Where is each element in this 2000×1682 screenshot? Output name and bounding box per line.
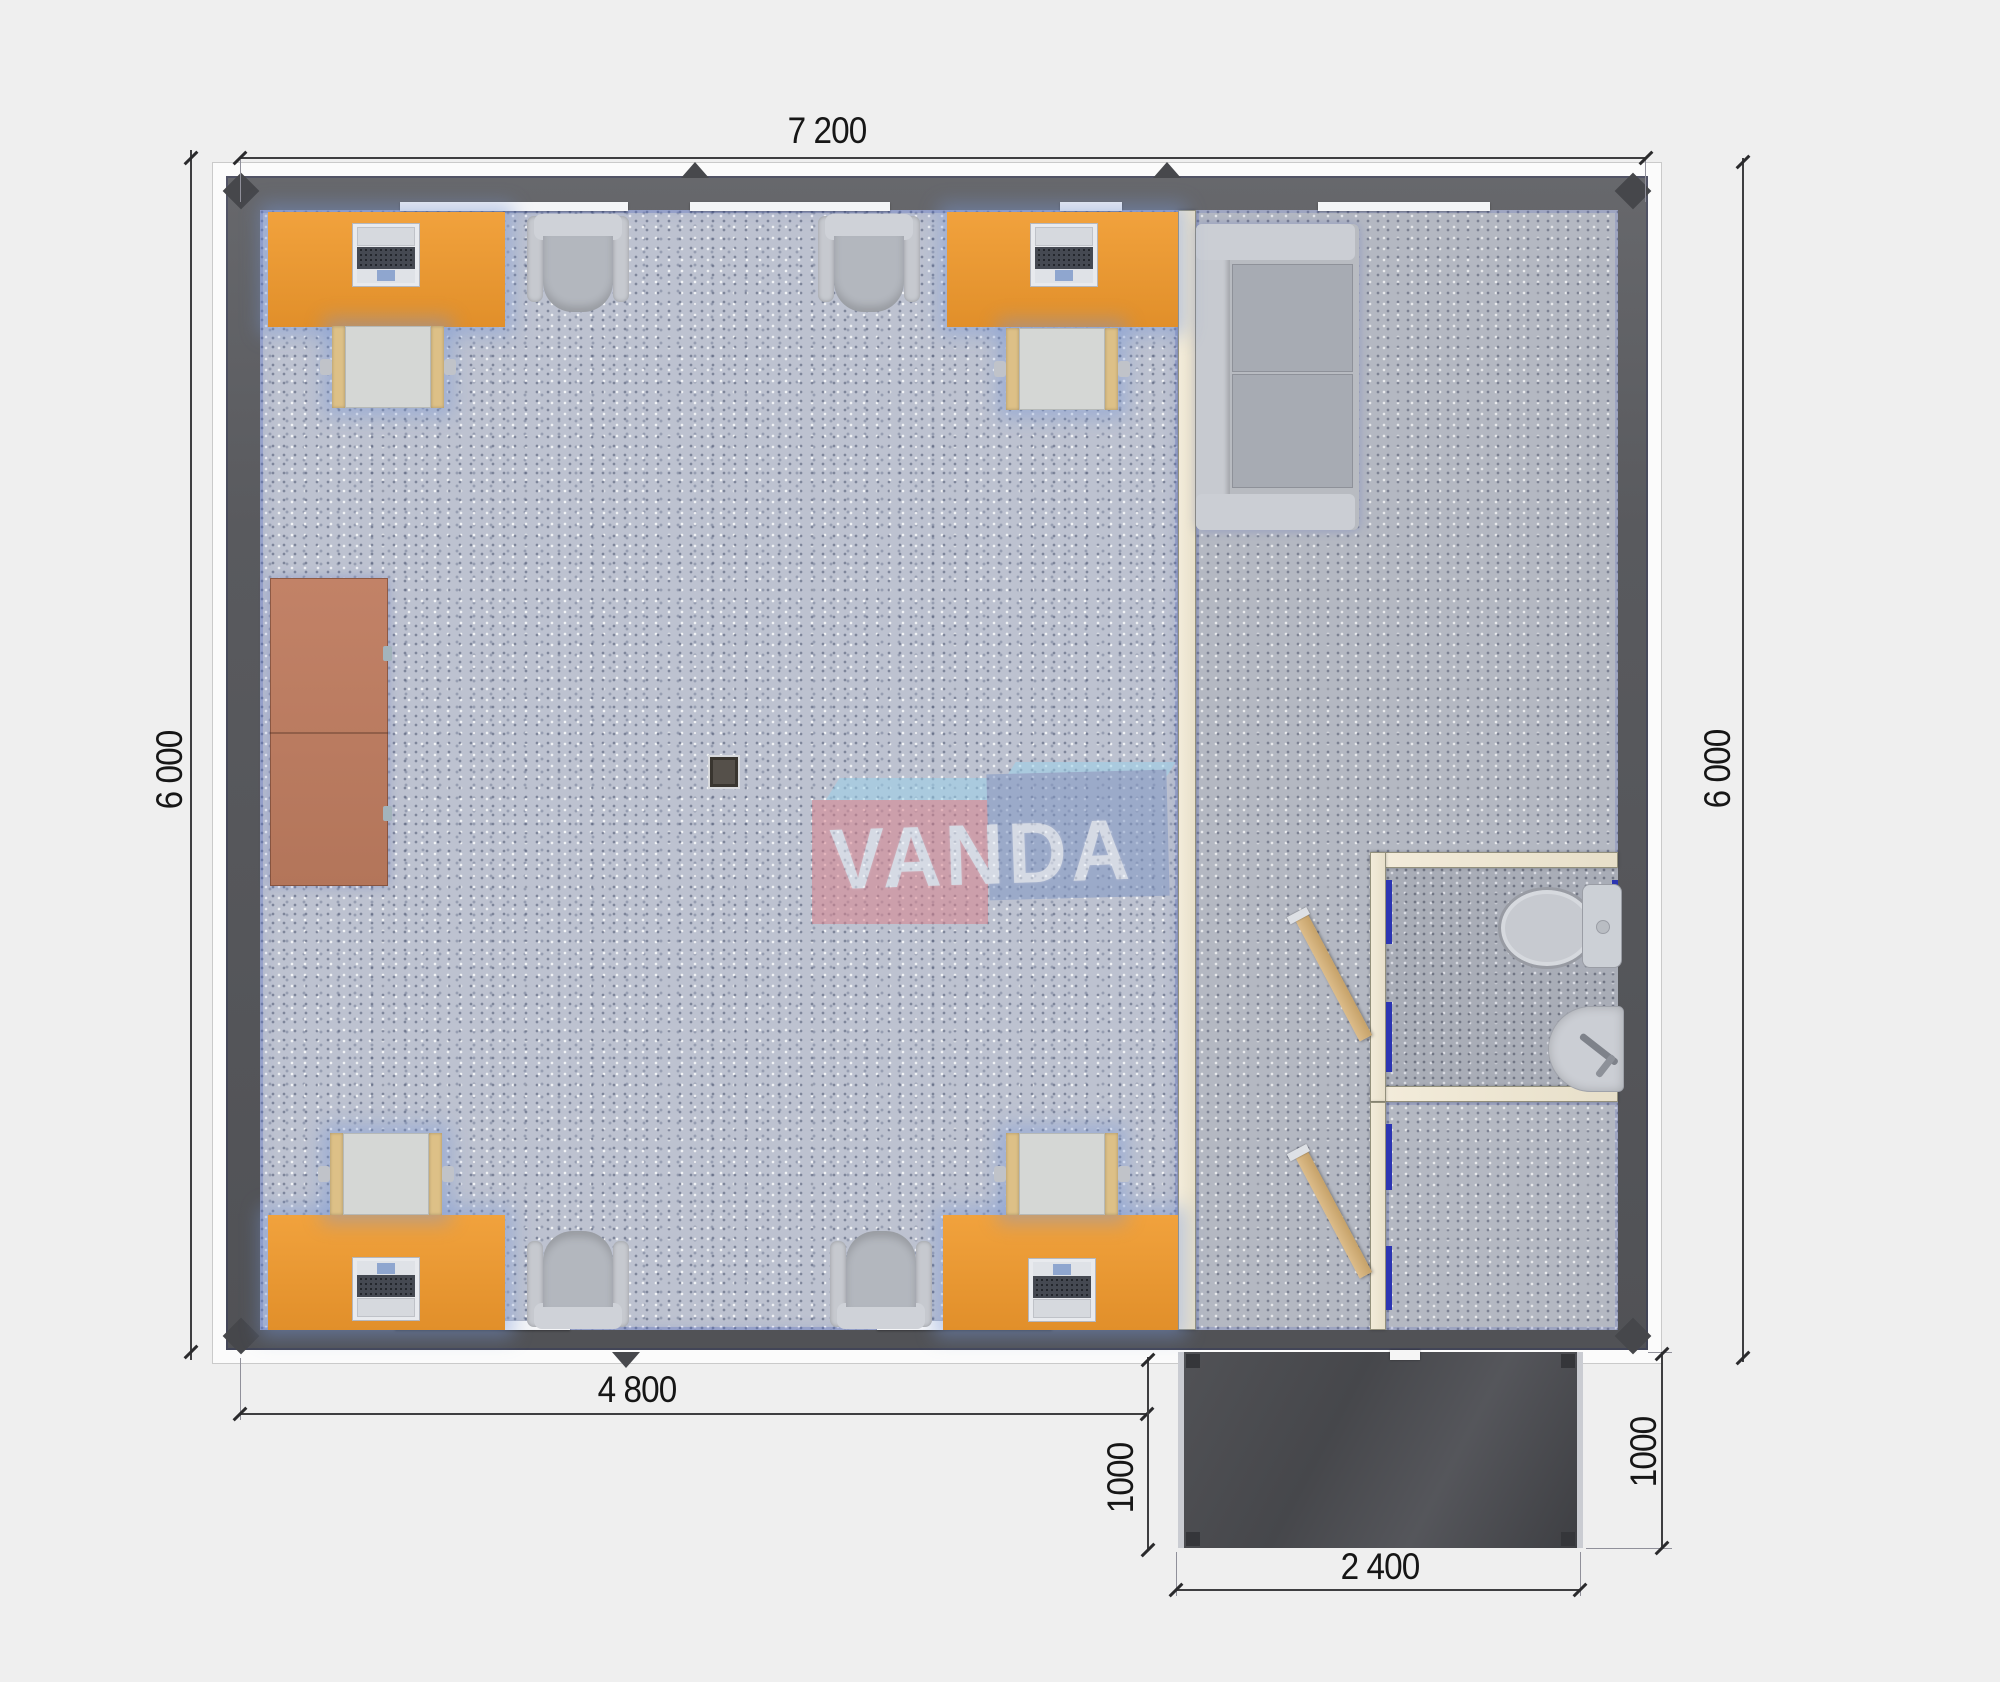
bathroom-door-frame <box>1386 1002 1392 1072</box>
laptop-keyboard <box>357 1275 415 1297</box>
task-table <box>1006 328 1118 410</box>
laptop-lid <box>1035 227 1093 246</box>
armchair <box>527 1231 629 1329</box>
table-rail <box>1105 328 1118 410</box>
chair-armrest-nub <box>442 1166 454 1182</box>
porch-post <box>1561 1354 1575 1368</box>
tucked-chair-seat <box>1019 1133 1105 1215</box>
task-table <box>1006 1133 1118 1215</box>
chair-armrest-nub <box>318 1166 330 1182</box>
armchair-seat <box>543 236 613 312</box>
bathroom-wall-left <box>1370 852 1386 1102</box>
dim-label-porch-depth-right: 1000 <box>1623 1417 1665 1487</box>
laptop <box>352 223 420 287</box>
laptop <box>352 1257 420 1321</box>
window-top-2 <box>690 202 890 211</box>
table-rail <box>1006 328 1019 410</box>
wash-basin <box>1548 1006 1624 1092</box>
armchair <box>818 214 920 312</box>
armchair-seat <box>543 1231 613 1307</box>
dim-line-porch-width <box>1176 1589 1580 1591</box>
laptop-touchpad <box>1055 270 1073 281</box>
support-column <box>710 757 738 787</box>
sofa <box>1196 224 1359 530</box>
table-rail <box>431 326 444 408</box>
cabinet-handle <box>383 806 392 821</box>
armchair <box>830 1231 932 1329</box>
table-rail <box>330 1133 343 1215</box>
dim-label-porch-depth-left: 1000 <box>1100 1443 1142 1513</box>
laptop-touchpad <box>377 270 395 281</box>
dim-label-left-height: 6 000 <box>149 731 191 810</box>
chair-armrest-nub <box>320 359 332 375</box>
sofa-armrest <box>1196 224 1355 260</box>
dim-line-top <box>240 157 1646 159</box>
table-rail <box>429 1133 442 1215</box>
laptop-lid <box>357 1298 415 1317</box>
partition-wall <box>1178 210 1196 1330</box>
laptop <box>1030 223 1098 287</box>
window-top-4 <box>1318 202 1490 211</box>
toilet <box>1498 884 1622 966</box>
dim-label-top-width: 7 200 <box>788 110 867 152</box>
cabinet-split-line <box>270 732 388 734</box>
porch-post <box>1186 1354 1200 1368</box>
floor-plan-canvas: VANDA 7 200 6 000 6 000 4 800 1000 1000 … <box>0 0 2000 1682</box>
dim-label-right-height: 6 000 <box>1697 730 1739 809</box>
dim-label-porch-width: 2 400 <box>1341 1546 1420 1588</box>
vestibule-door-frame <box>1386 1124 1392 1190</box>
vanda-watermark-logo: VANDA <box>806 760 1170 936</box>
logo-wordmark: VANDA <box>828 801 1135 911</box>
dim-line-office-width <box>240 1413 1147 1415</box>
laptop-keyboard <box>357 247 415 269</box>
bathroom-wall-top <box>1370 852 1618 868</box>
chair-armrest-nub <box>994 1166 1006 1182</box>
module-seam-icon <box>681 162 709 178</box>
porch-post <box>1186 1532 1200 1546</box>
chair-armrest-nub <box>994 361 1006 377</box>
laptop-lid <box>357 227 415 246</box>
tucked-chair-seat <box>345 326 431 408</box>
logo-band-icon <box>825 778 1008 802</box>
module-seam-icon <box>1153 162 1181 178</box>
laptop-touchpad <box>377 1263 395 1274</box>
dim-witness <box>1645 160 1646 202</box>
window-top-3 <box>1060 202 1122 211</box>
cabinet-handle <box>383 646 392 661</box>
window-top-1 <box>400 202 628 211</box>
laptop-lid <box>1033 1299 1091 1318</box>
table-rail <box>332 326 345 408</box>
door-mat <box>1390 1350 1420 1360</box>
porch-post <box>1561 1532 1575 1546</box>
vestibule-floor <box>1386 1102 1618 1330</box>
sofa-backrest <box>1196 224 1230 530</box>
storage-cabinet <box>270 578 388 886</box>
tucked-chair-seat <box>343 1133 429 1215</box>
vestibule-door-frame <box>1386 1246 1392 1310</box>
module-seam-icon <box>612 1352 640 1368</box>
laptop <box>1028 1258 1096 1322</box>
task-table <box>332 326 444 408</box>
sofa-armrest <box>1196 494 1355 530</box>
dim-witness <box>240 160 241 202</box>
sofa-cushion <box>1232 264 1353 372</box>
sofa-cushion <box>1232 374 1353 488</box>
tucked-chair-seat <box>1019 328 1105 410</box>
chair-armrest-nub <box>1118 361 1130 377</box>
bathroom-door-frame <box>1386 880 1392 944</box>
toilet-flush-button <box>1596 920 1610 934</box>
task-table <box>330 1133 442 1215</box>
laptop-keyboard <box>1035 247 1093 269</box>
chair-armrest-nub <box>444 359 456 375</box>
entry-porch-deck <box>1178 1352 1583 1548</box>
laptop-keyboard <box>1033 1276 1091 1298</box>
dim-line-porch-depth-left <box>1147 1357 1149 1550</box>
laptop-touchpad <box>1053 1264 1071 1275</box>
dim-label-office-width: 4 800 <box>598 1369 677 1411</box>
vestibule-wall-left <box>1370 1102 1386 1330</box>
table-rail <box>1105 1133 1118 1215</box>
chair-armrest-nub <box>1118 1166 1130 1182</box>
table-rail <box>1006 1133 1019 1215</box>
dim-line-right <box>1742 158 1744 1362</box>
armchair <box>527 214 629 312</box>
armchair-seat <box>834 236 904 312</box>
armchair-seat <box>846 1231 916 1307</box>
